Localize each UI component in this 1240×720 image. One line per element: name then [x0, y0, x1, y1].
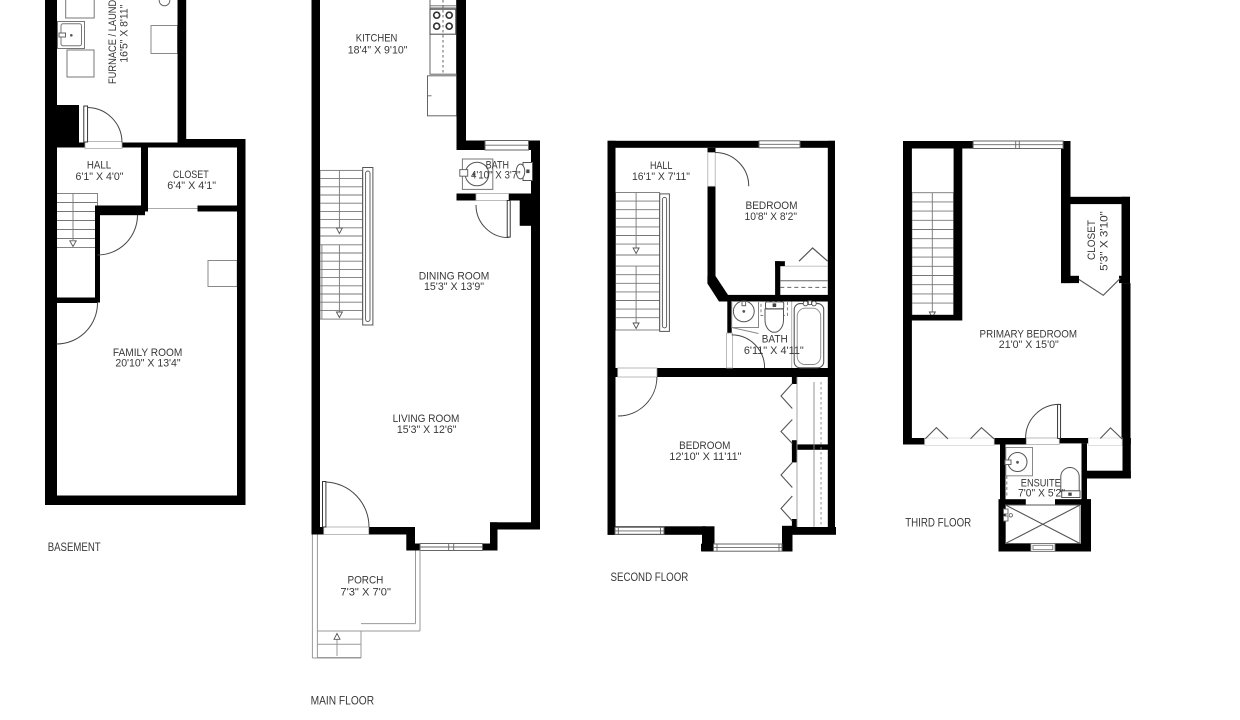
- svg-text:KITCHEN: KITCHEN: [356, 33, 398, 45]
- svg-text:4'10" X 3'7": 4'10" X 3'7": [471, 169, 521, 181]
- svg-text:15'3" X 13'9": 15'3" X 13'9": [424, 281, 484, 293]
- svg-text:5'3" X 3'10": 5'3" X 3'10": [1099, 211, 1111, 271]
- svg-text:16'5" X 8'11": 16'5" X 8'11": [119, 4, 131, 62]
- svg-text:CLOSET: CLOSET: [173, 169, 209, 181]
- svg-text:6'11" X 4'11": 6'11" X 4'11": [744, 345, 804, 357]
- svg-text:BEDROOM: BEDROOM: [746, 200, 798, 212]
- svg-text:21'0" X 15'0": 21'0" X 15'0": [999, 339, 1059, 351]
- svg-text:7'0" X 5'2": 7'0" X 5'2": [1018, 488, 1065, 500]
- svg-text:BATH: BATH: [762, 334, 788, 346]
- svg-text:10'8" X 8'2": 10'8" X 8'2": [745, 211, 798, 223]
- svg-text:18'4" X 9'10": 18'4" X 9'10": [348, 45, 408, 57]
- svg-text:LIVING ROOM: LIVING ROOM: [393, 413, 460, 425]
- svg-text:CLOSET: CLOSET: [1086, 220, 1098, 260]
- svg-text:6'4" X 4'1": 6'4" X 4'1": [167, 180, 216, 192]
- svg-text:16'1" X 7'11": 16'1" X 7'11": [632, 171, 690, 183]
- svg-text:SECOND FLOOR: SECOND FLOOR: [611, 570, 689, 584]
- svg-text:PORCH: PORCH: [347, 575, 383, 587]
- svg-text:7'3" X 7'0": 7'3" X 7'0": [340, 586, 391, 598]
- svg-text:FURNACE / LAUNDRY: FURNACE / LAUNDRY: [107, 0, 119, 84]
- svg-text:HALL: HALL: [650, 160, 673, 172]
- svg-text:6'1" X 4'0": 6'1" X 4'0": [76, 171, 124, 183]
- svg-text:THIRD FLOOR: THIRD FLOOR: [905, 516, 971, 530]
- svg-text:BASEMENT: BASEMENT: [48, 540, 101, 554]
- svg-text:12'10" X 11'11": 12'10" X 11'11": [669, 451, 742, 463]
- svg-text:MAIN FLOOR: MAIN FLOOR: [311, 694, 375, 708]
- svg-text:20'10" X 13'4": 20'10" X 13'4": [115, 358, 181, 370]
- svg-text:15'3" X 12'6": 15'3" X 12'6": [397, 424, 457, 436]
